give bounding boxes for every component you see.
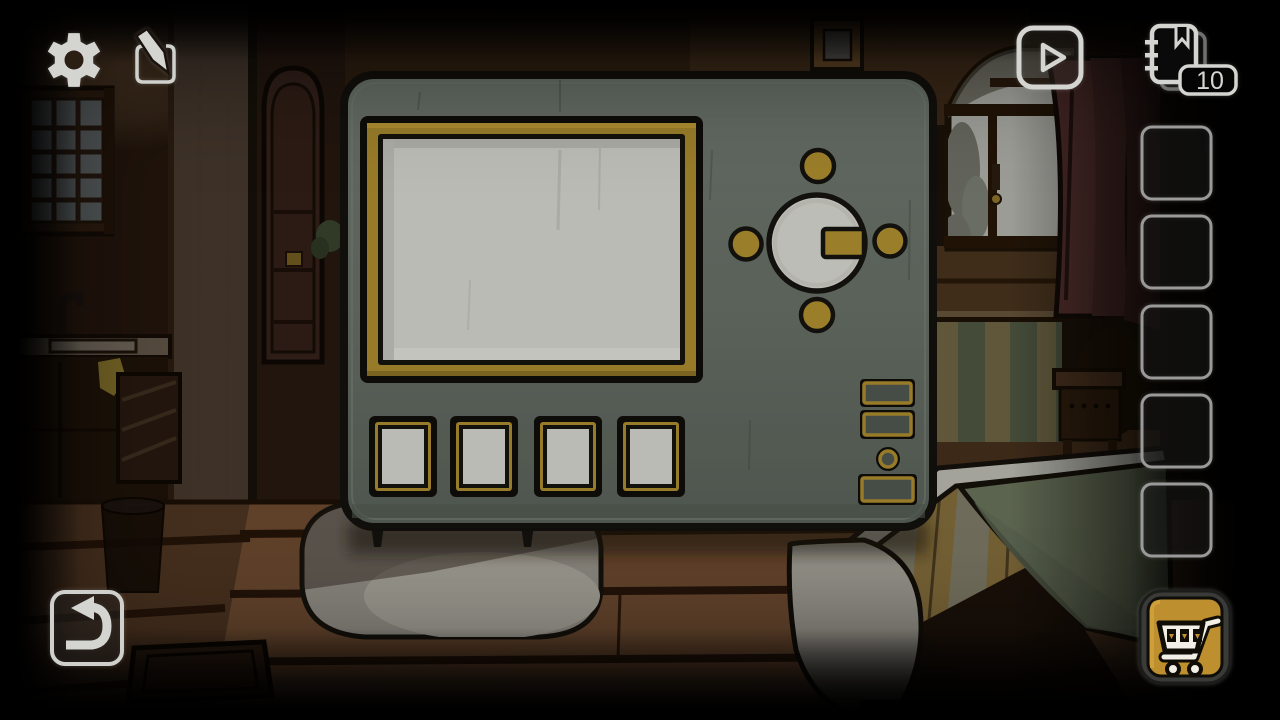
svg-text:10: 10 [1196, 67, 1224, 95]
